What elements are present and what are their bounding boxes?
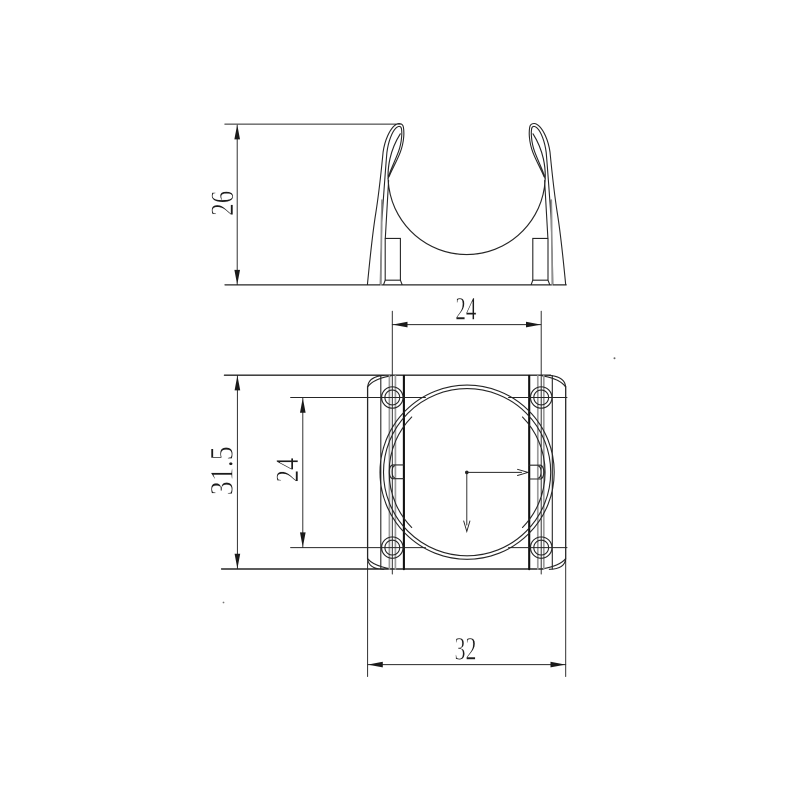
svg-text:24: 24 <box>455 292 476 328</box>
svg-text:26: 26 <box>205 191 241 216</box>
svg-text:32: 32 <box>455 632 477 668</box>
svg-text:24: 24 <box>270 458 306 483</box>
svg-text:31.5: 31.5 <box>204 446 240 495</box>
